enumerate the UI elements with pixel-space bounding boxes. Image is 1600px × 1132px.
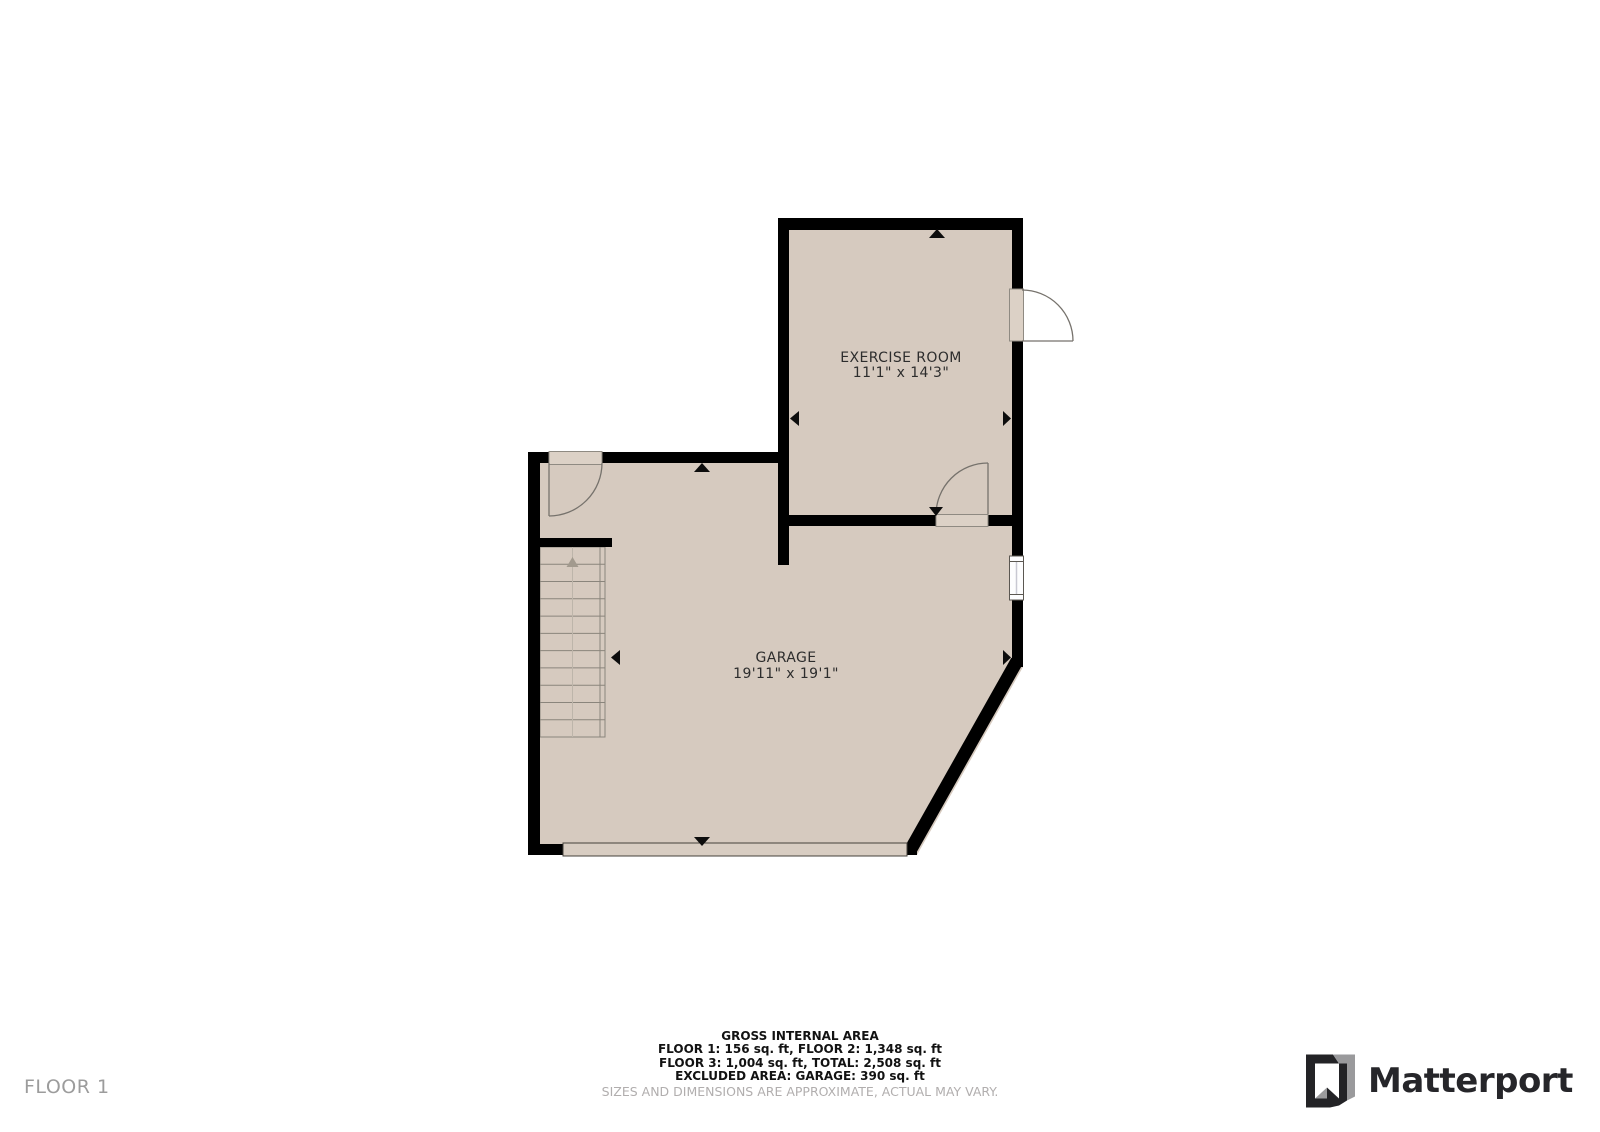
- floorplan-page: { "floor_label": "FLOOR 1", "rooms": { "…: [0, 0, 1600, 1132]
- garage-door: [563, 843, 907, 856]
- garage-room-dimensions: 19'11" x 19'1": [733, 667, 839, 682]
- exercise-room-name: EXERCISE ROOM: [840, 351, 961, 366]
- staircase: [540, 547, 605, 737]
- matterport-logo-text: Matterport: [1368, 1052, 1573, 1110]
- matterport-logo: Matterport: [1306, 1052, 1573, 1110]
- garage-entry-door-leaf: [549, 452, 602, 465]
- floorplan-drawing: [0, 0, 1600, 1132]
- gross-internal-area-title: GROSS INTERNAL AREA: [0, 1030, 1600, 1043]
- floor-number-label: FLOOR 1: [24, 1076, 110, 1098]
- matterport-logo-mark: [1306, 1054, 1355, 1108]
- exercise-room-dimensions: 11'1" x 14'3": [853, 366, 949, 381]
- interior-door-leaf: [936, 515, 988, 527]
- exercise-room-exterior-door-swing: [1022, 290, 1073, 341]
- window: [1010, 556, 1024, 600]
- exercise-room-exterior-door-leaf: [1010, 289, 1024, 341]
- floor-area: [528, 218, 1023, 855]
- garage-room-name: GARAGE: [755, 651, 816, 666]
